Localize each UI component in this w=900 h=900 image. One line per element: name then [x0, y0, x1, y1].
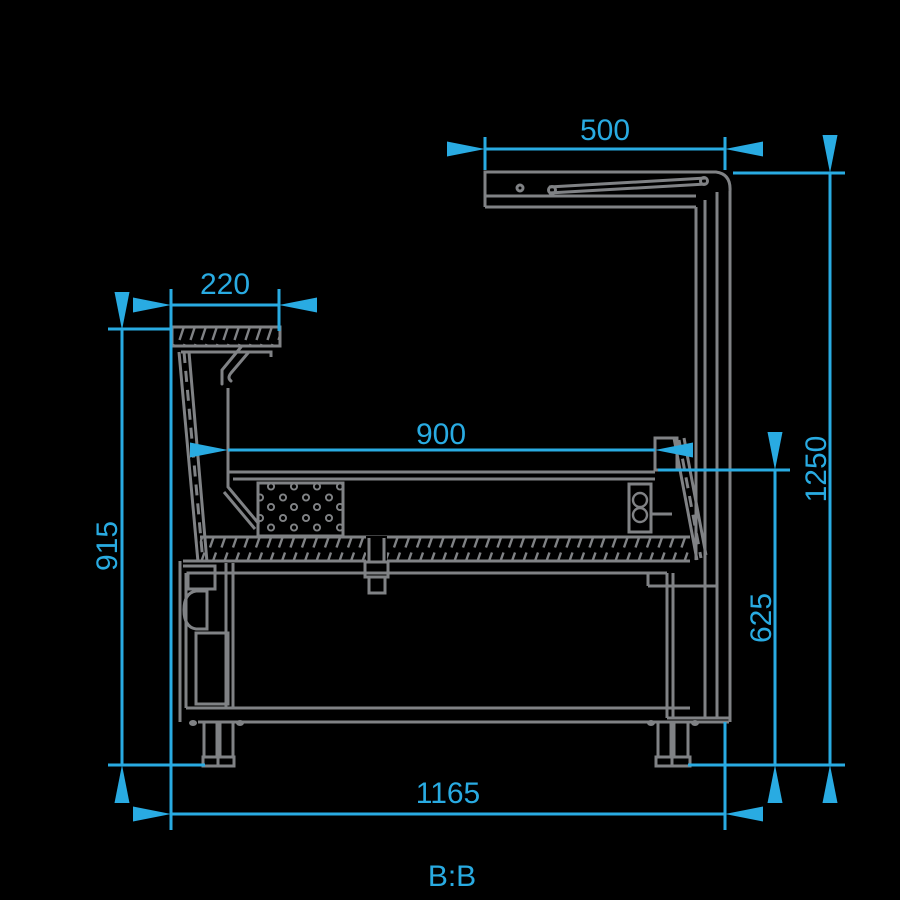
electrical-box [188, 573, 215, 589]
rear-post [696, 191, 730, 722]
lamp-bracket [549, 178, 708, 194]
label-overall-height: 1250 [800, 436, 833, 503]
front-glass [179, 352, 207, 562]
fan-unit [629, 484, 672, 532]
label-well-width: 900 [416, 418, 466, 451]
canopy-screw [517, 185, 523, 191]
canopy [485, 172, 730, 207]
label-rear-inner-height: 625 [745, 593, 778, 643]
section-label: B:B [428, 860, 476, 893]
drawing-canvas: 500 220 900 915 625 1250 1165 B:B [0, 0, 900, 900]
deck [183, 537, 717, 586]
drain [365, 536, 388, 593]
technical-drawing: 500 220 900 915 625 1250 1165 B:B [0, 0, 900, 900]
feet [189, 720, 699, 766]
compressor-box [196, 633, 228, 704]
rear-foot [656, 722, 690, 766]
label-canopy-width: 500 [580, 114, 630, 147]
perforated-panel [258, 483, 343, 536]
label-overall-depth: 1165 [416, 777, 481, 810]
label-overshelf-depth: 220 [200, 268, 250, 301]
front-foot [203, 722, 234, 766]
label-front-height: 915 [91, 521, 124, 571]
